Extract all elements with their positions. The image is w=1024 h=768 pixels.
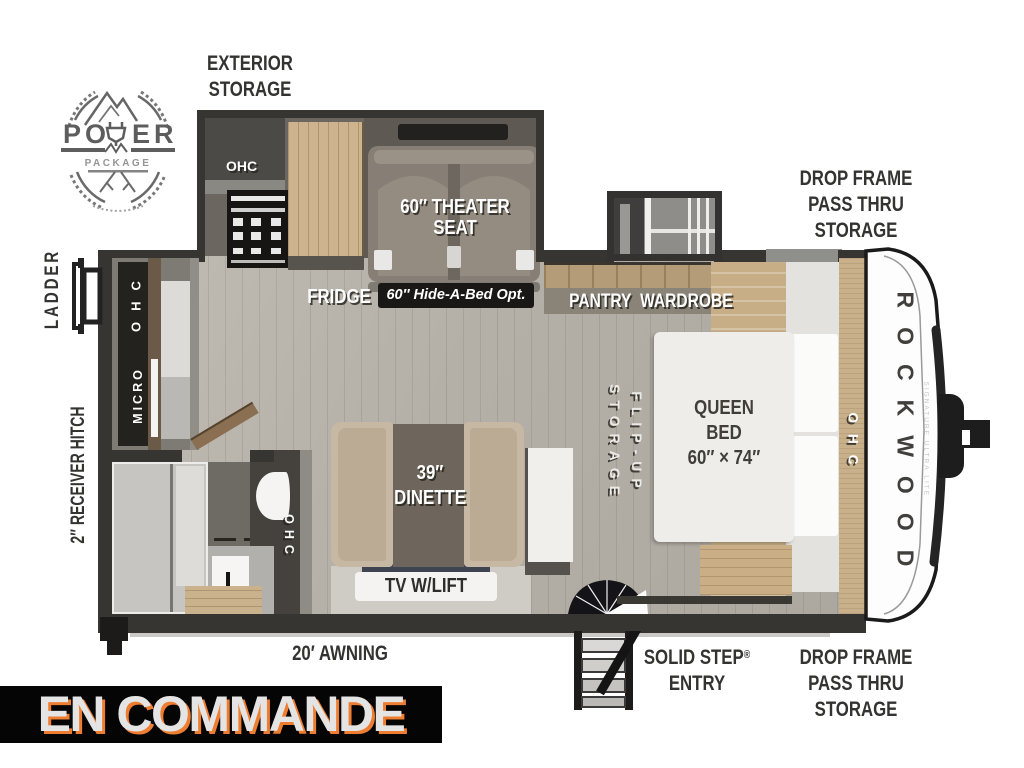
svg-text:PACKAGE: PACKAGE bbox=[85, 158, 152, 169]
svg-text:ER: ER bbox=[132, 119, 178, 149]
svg-text:PO: PO bbox=[63, 119, 110, 149]
